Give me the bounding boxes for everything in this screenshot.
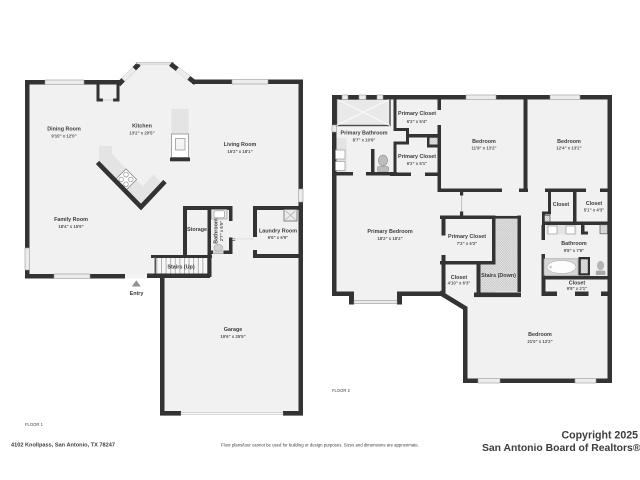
svg-text:Bathroom: Bathroom <box>561 241 587 247</box>
svg-text:San Antonio Board of Realtors®: San Antonio Board of Realtors® <box>482 443 640 454</box>
svg-text:Primary Closet: Primary Closet <box>398 154 436 160</box>
svg-text:6'6" x 6'9": 6'6" x 6'9" <box>268 235 288 240</box>
svg-text:Primary Bathroom: Primary Bathroom <box>340 131 387 137</box>
svg-text:9'10" x 12'0": 9'10" x 12'0" <box>51 134 76 139</box>
svg-text:6'2" x 5'1": 6'2" x 5'1" <box>407 161 427 166</box>
svg-text:19'6" x 25'5": 19'6" x 25'5" <box>220 334 245 339</box>
svg-text:7'2" x 6'2": 7'2" x 6'2" <box>457 241 477 246</box>
svg-text:9'8" x 7'6": 9'8" x 7'6" <box>564 248 584 253</box>
svg-text:Storage: Storage <box>187 227 207 233</box>
svg-text:FLOOR 1: FLOOR 1 <box>25 422 44 427</box>
svg-text:Copyright 2025: Copyright 2025 <box>561 430 638 442</box>
svg-text:Dining Room: Dining Room <box>47 127 81 133</box>
svg-text:Primary Closet: Primary Closet <box>398 111 436 117</box>
svg-text:Bedroom: Bedroom <box>528 332 552 338</box>
svg-text:18'2" x 18'2": 18'2" x 18'2" <box>377 236 402 241</box>
svg-text:Closet: Closet <box>553 202 570 208</box>
svg-text:Laundry Room: Laundry Room <box>259 229 297 235</box>
svg-text:18'4" x 15'9": 18'4" x 15'9" <box>58 224 83 229</box>
svg-text:15'2" x 18'1": 15'2" x 18'1" <box>227 149 252 154</box>
svg-text:Closet: Closet <box>586 201 603 207</box>
svg-text:6'2" x 5'4": 6'2" x 5'4" <box>407 119 427 124</box>
svg-text:Bedroom: Bedroom <box>557 139 581 145</box>
svg-text:Stairs (Up): Stairs (Up) <box>167 265 194 271</box>
svg-text:12'4" x 13'2": 12'4" x 13'2" <box>556 146 581 151</box>
svg-text:FLOOR 2: FLOOR 2 <box>332 388 351 393</box>
svg-text:4102 Knollpass, San Antonio, T: 4102 Knollpass, San Antonio, TX 78247 <box>11 442 115 448</box>
svg-text:11'9" x 13'2": 11'9" x 13'2" <box>472 146 497 151</box>
svg-text:Garage: Garage <box>224 327 243 333</box>
svg-text:9'8" x 2'1": 9'8" x 2'1" <box>567 286 587 291</box>
svg-text:13'2" x 20'5": 13'2" x 20'5" <box>129 131 154 136</box>
svg-text:5'1" x 4'3": 5'1" x 4'3" <box>584 208 604 213</box>
svg-text:Bedroom: Bedroom <box>472 139 496 145</box>
svg-text:Primary Bedroom: Primary Bedroom <box>367 229 412 235</box>
svg-text:Living Room: Living Room <box>224 142 257 148</box>
svg-text:Stairs (Down): Stairs (Down) <box>481 273 516 279</box>
svg-text:Family Room: Family Room <box>54 217 88 223</box>
svg-text:4'10" x 6'3": 4'10" x 6'3" <box>448 281 471 286</box>
svg-text:Kitchen: Kitchen <box>132 124 152 130</box>
svg-text:Floor plans/tour cannot be use: Floor plans/tour cannot be used for buil… <box>221 442 419 447</box>
svg-text:2'7" x 6'5": 2'7" x 6'5" <box>219 221 224 241</box>
svg-text:Primary Closet: Primary Closet <box>448 234 486 240</box>
svg-text:Entry: Entry <box>130 291 144 297</box>
svg-text:21'0" x 12'2": 21'0" x 12'2" <box>527 339 552 344</box>
svg-text:8'7" x 10'9": 8'7" x 10'9" <box>353 138 376 143</box>
